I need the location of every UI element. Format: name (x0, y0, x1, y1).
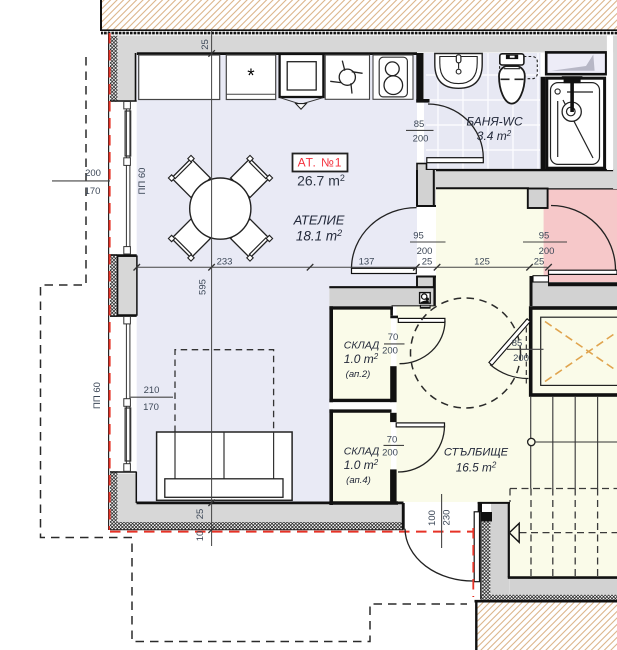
svg-text:СТЪЛБИЩЕ: СТЪЛБИЩЕ (444, 447, 509, 459)
svg-text:25: 25 (200, 39, 211, 50)
svg-text:200: 200 (513, 353, 529, 364)
svg-text:125: 125 (474, 257, 490, 268)
svg-text:3.4 m2: 3.4 m2 (477, 129, 512, 143)
svg-text:595: 595 (198, 279, 209, 295)
svg-text:1.0 m2: 1.0 m2 (344, 352, 379, 366)
svg-text:137: 137 (359, 257, 375, 268)
svg-text:СКЛАД: СКЛАД (344, 340, 380, 352)
svg-text:БАНЯ-WC: БАНЯ-WC (466, 115, 523, 129)
svg-text:(ап.2): (ап.2) (346, 369, 371, 380)
svg-text:АТ. №1: АТ. №1 (298, 156, 343, 170)
svg-text:233: 233 (217, 257, 233, 268)
svg-text:СКЛАД: СКЛАД (344, 446, 380, 458)
svg-text:70: 70 (388, 332, 399, 343)
svg-text:16.5 m2: 16.5 m2 (456, 461, 497, 475)
svg-text:200: 200 (413, 134, 429, 145)
svg-text:85: 85 (414, 119, 425, 130)
svg-text:26.7 m2: 26.7 m2 (297, 173, 345, 189)
svg-text:200: 200 (382, 346, 398, 357)
svg-text:95: 95 (413, 231, 424, 242)
svg-text:70: 70 (387, 434, 398, 445)
svg-text:(ап.4): (ап.4) (346, 475, 371, 486)
svg-text:25: 25 (195, 509, 206, 520)
svg-text:10: 10 (195, 531, 206, 542)
svg-text:1.0 m2: 1.0 m2 (344, 458, 379, 472)
svg-text:200: 200 (539, 246, 555, 257)
svg-text:210: 210 (144, 385, 160, 396)
svg-text:170: 170 (143, 402, 159, 413)
svg-text:85: 85 (512, 338, 523, 349)
svg-text:ПП 60: ПП 60 (92, 382, 103, 409)
svg-text:25: 25 (534, 257, 545, 268)
svg-text:100: 100 (427, 510, 438, 526)
svg-text:230: 230 (442, 510, 453, 526)
svg-text:95: 95 (539, 231, 550, 242)
svg-text:ПП 60: ПП 60 (137, 168, 148, 195)
svg-text:25: 25 (422, 257, 433, 268)
svg-text:АТЕЛИЕ: АТЕЛИЕ (293, 213, 345, 228)
svg-text:18.1 m2: 18.1 m2 (296, 228, 342, 244)
svg-text:200: 200 (85, 168, 101, 179)
svg-text:200: 200 (382, 447, 398, 458)
svg-text:200: 200 (417, 246, 433, 257)
svg-text:170: 170 (85, 186, 101, 197)
svg-text:*: * (247, 66, 255, 87)
